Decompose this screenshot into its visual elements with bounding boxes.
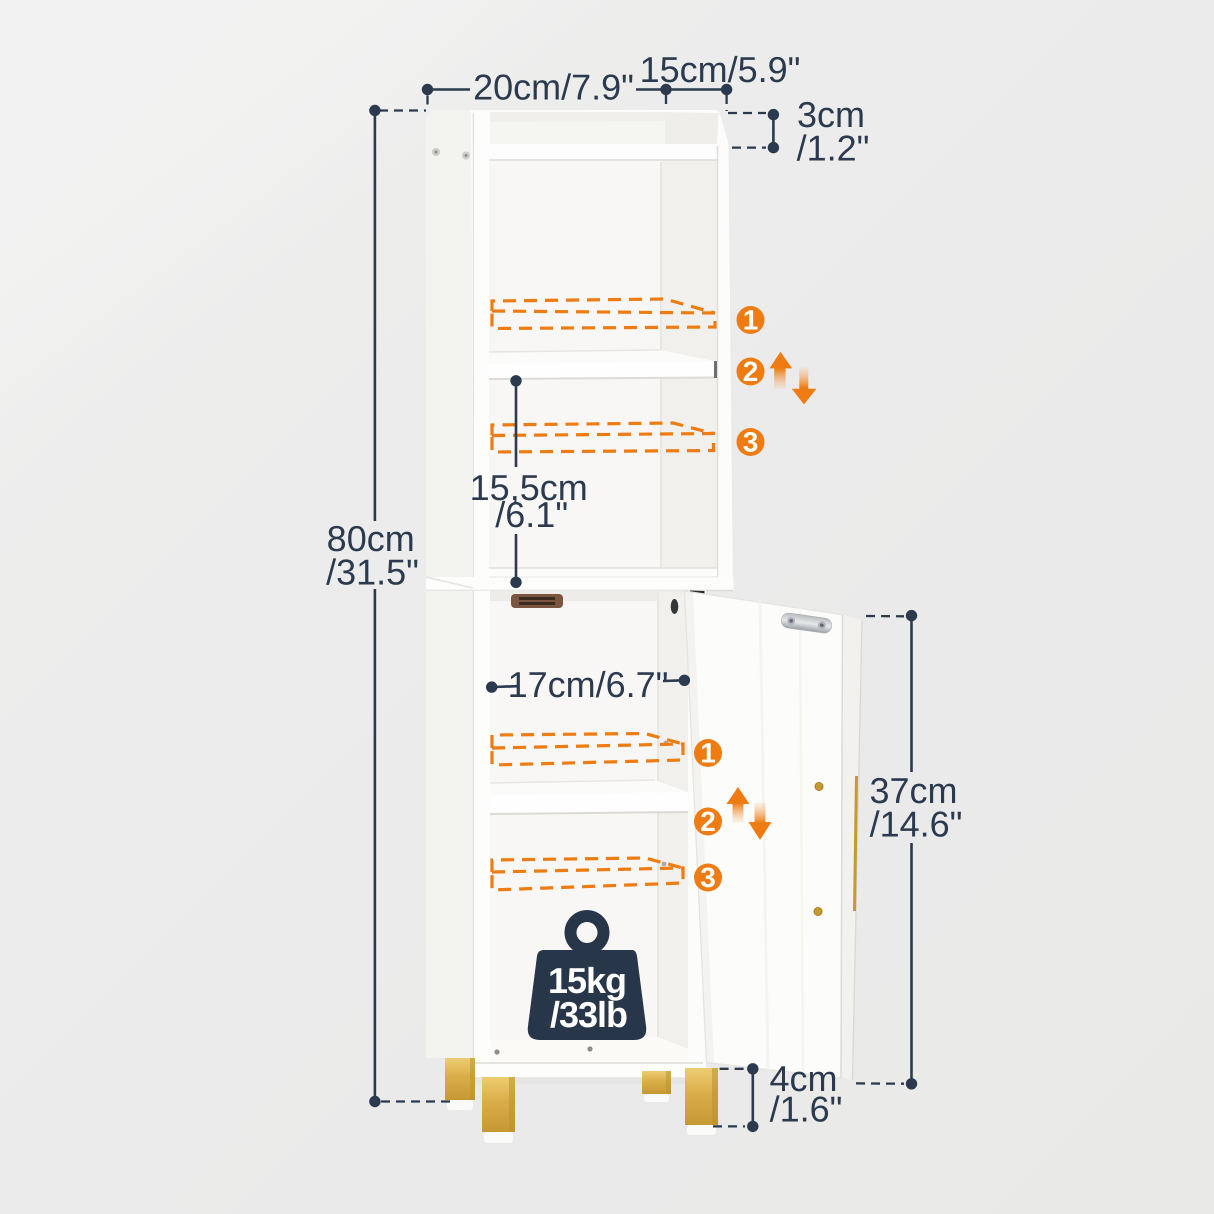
svg-text:2: 2: [700, 806, 716, 837]
svg-text:/6.1": /6.1": [495, 494, 568, 535]
svg-text:/1.2": /1.2": [797, 128, 870, 169]
svg-text:15cm/5.9": 15cm/5.9": [640, 49, 801, 90]
svg-text:17cm/6.7": 17cm/6.7": [508, 664, 669, 705]
svg-text:1: 1: [743, 305, 759, 336]
svg-text:/33lb: /33lb: [550, 994, 627, 1035]
svg-text:2: 2: [743, 356, 759, 387]
svg-text:3: 3: [743, 427, 759, 458]
svg-text:3: 3: [700, 862, 716, 893]
svg-text:/14.6": /14.6": [870, 804, 963, 845]
svg-text:/31.5": /31.5": [326, 552, 419, 593]
svg-text:/1.6": /1.6": [770, 1089, 843, 1130]
svg-text:20cm/7.9": 20cm/7.9": [473, 67, 634, 108]
svg-text:1: 1: [700, 738, 716, 769]
